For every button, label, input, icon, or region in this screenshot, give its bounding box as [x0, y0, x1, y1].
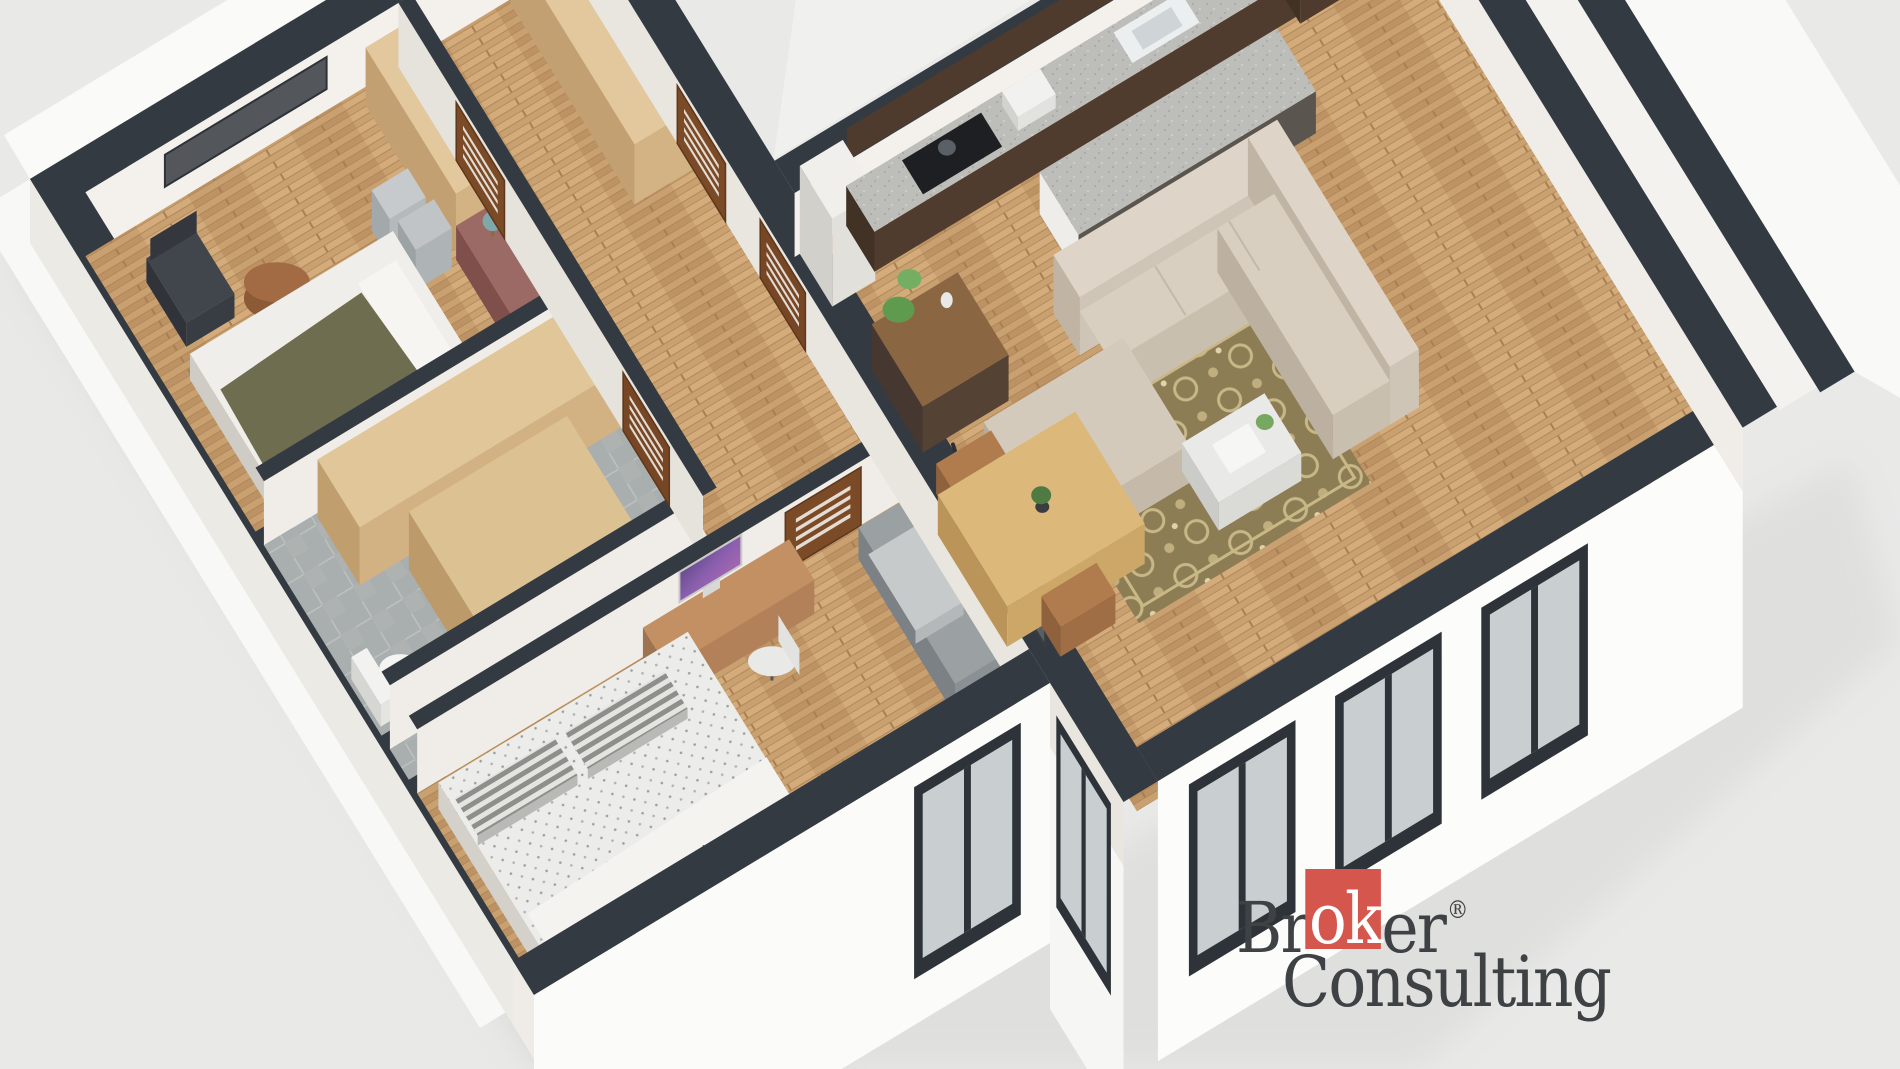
broker-consulting-logo: Broker® Consulting [1236, 893, 1647, 1017]
floorplan-screenshot: Broker® Consulting [0, 0, 1900, 1069]
table-plant [1031, 486, 1051, 504]
succulent [1256, 414, 1274, 430]
registered-trademark-icon: ® [1447, 896, 1469, 924]
window-a-mullion [964, 765, 971, 933]
chest-vase [941, 292, 953, 308]
window-d-mullion [1385, 674, 1392, 842]
chest-plant-1 [883, 297, 915, 323]
kettle [938, 140, 956, 156]
window-b-mullion [1082, 768, 1086, 939]
logo-line-consulting: Consulting [1282, 947, 1610, 1017]
window-e-mullion [1531, 585, 1538, 753]
chest-plant-2 [897, 269, 921, 289]
